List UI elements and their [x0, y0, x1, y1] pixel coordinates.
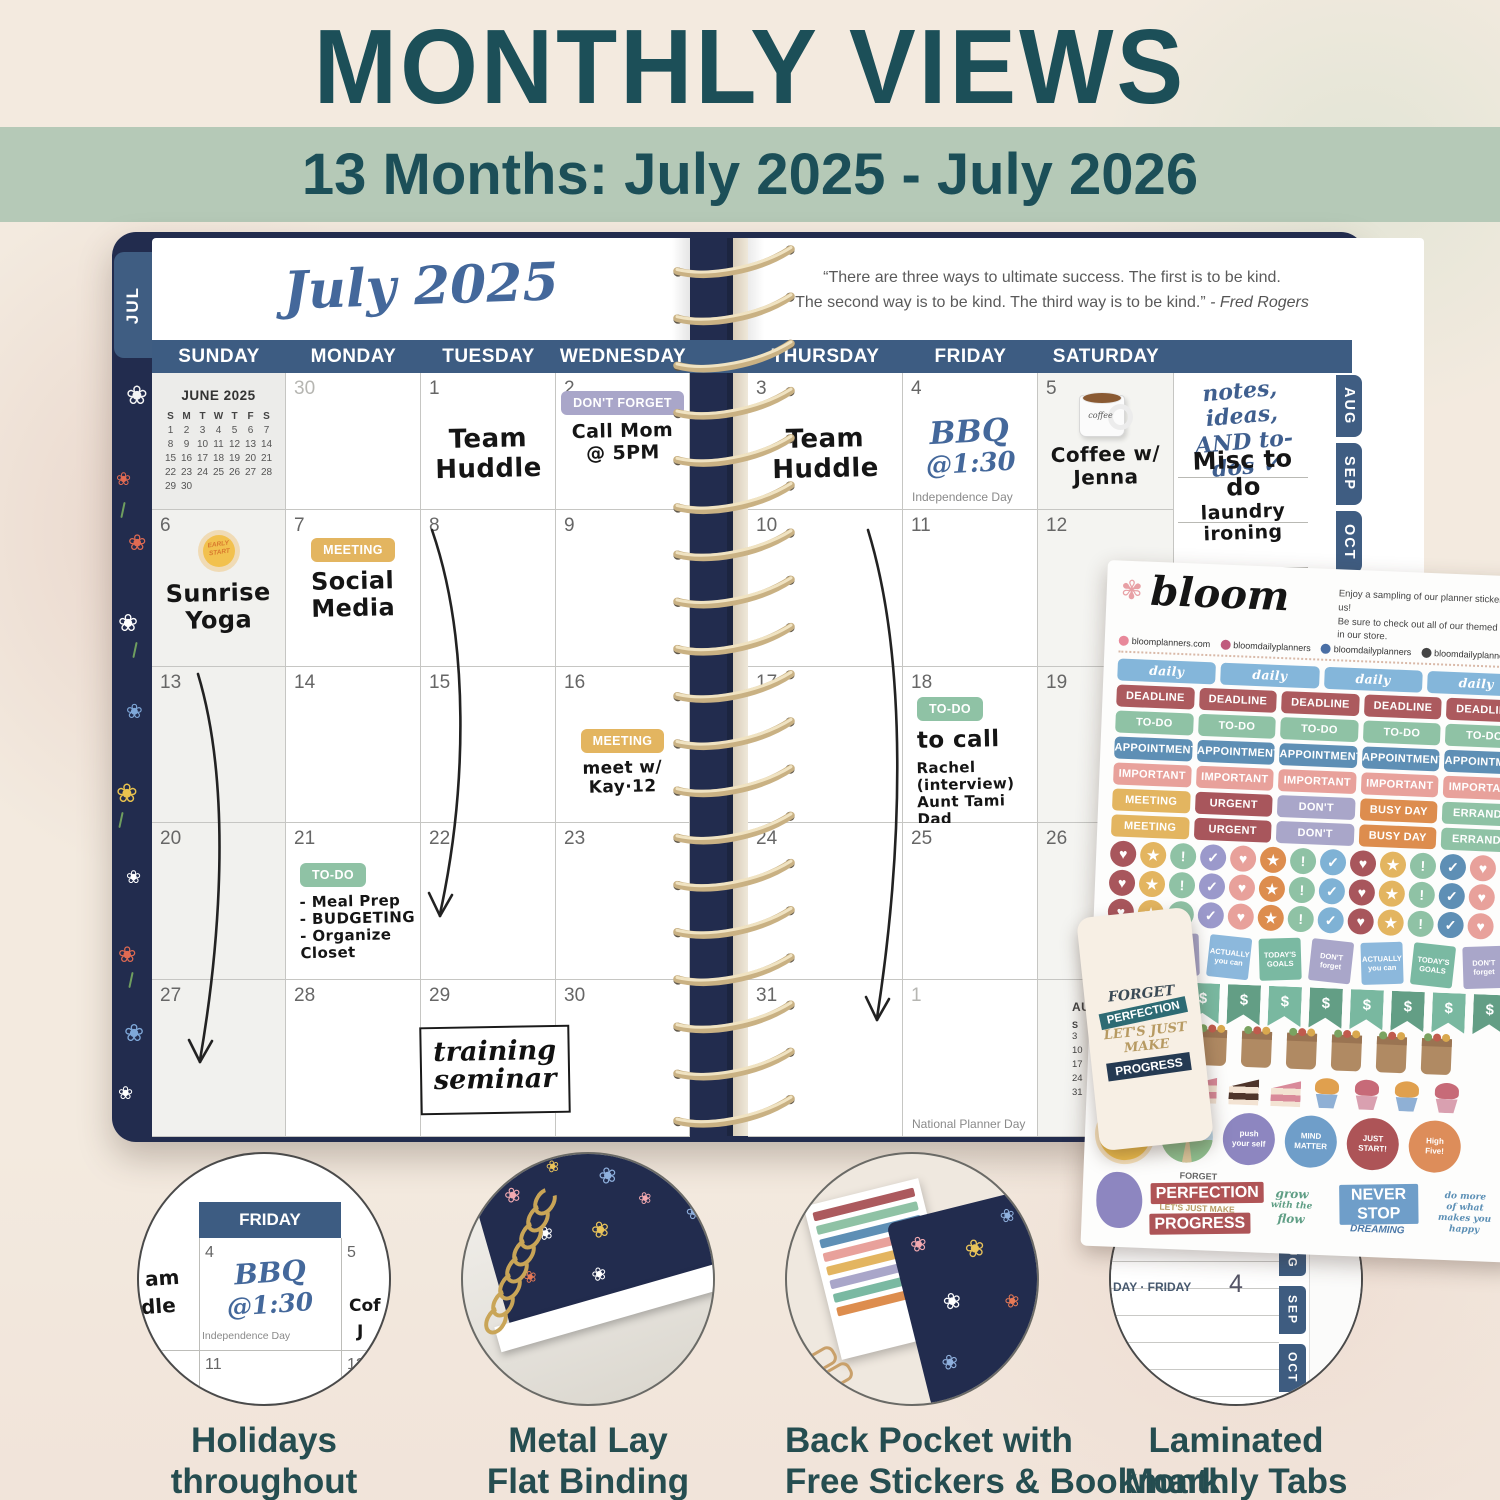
note-square-sticker: TODAY'S GOALS [1410, 942, 1456, 988]
sticker-label: ERRANDS [1442, 802, 1500, 827]
calendar-day-cell: 6EARLYSTARTSunriseYoga [152, 510, 286, 667]
sticker-dot: ♥ [1228, 874, 1255, 901]
sticker-label: APPOINTMENT [1444, 750, 1500, 775]
handwriting: SocialMedia [311, 567, 396, 623]
sticker-label: TO-DO [1280, 717, 1358, 742]
sticker-dot: ★ [1258, 875, 1285, 902]
sticker-label: TO-DO [1115, 711, 1193, 736]
day-cell-content: EARLYSTARTSunriseYoga [152, 510, 285, 635]
sticker-dot: ! [1409, 852, 1436, 879]
handwriting-line: Huddle [772, 454, 879, 486]
cupcake-sticker [1432, 1083, 1461, 1114]
calendar-day-cell: 24 [748, 823, 903, 980]
calendar-day-cell: 21TO-DO- Meal Prep- BUDGETING- Organize … [286, 823, 421, 980]
sticker-label: BUSY DAY [1360, 798, 1438, 823]
cover-flower: ❀ [596, 1163, 620, 1189]
calendar-day-cell: 30 [286, 373, 421, 510]
holiday-label: National Planner Day [912, 1117, 1025, 1131]
day-cell-content: TeamHuddle [421, 373, 555, 484]
cover-stem [128, 972, 133, 988]
quote-line2: The second way is to be kind. The third … [795, 294, 1206, 311]
sticker-label: ERRANDS [1441, 828, 1500, 853]
weekday-label: MONDAY [286, 340, 421, 373]
handwriting-line: Call Mom [571, 420, 673, 444]
day-cell-content: MEETINGmeet w/ Kay·12 [556, 667, 689, 798]
calendar-day-cell: 5coffeeCoffee w/Jenna [1038, 373, 1174, 510]
handwriting-line: meet w/ Kay·12 [556, 758, 690, 800]
quote-attribution: - Fred Rogers [1210, 294, 1309, 311]
sticker-text: HighFive! [1425, 1136, 1444, 1157]
calendar-day-cell: 23 [556, 823, 690, 980]
notes-hand-line: ironing [1174, 521, 1313, 547]
calendar-day-cell: JUNE 2025SMTWTFS123456789101112131415161… [152, 373, 286, 510]
mini-cal-week: 15161718192021 [152, 452, 285, 466]
cover-flower: ❀ [589, 1217, 613, 1243]
calendar-day-cell: 18TO-DOto callRachel (interview)Aunt Tam… [903, 667, 1038, 823]
label-sticker: TO-DO [300, 863, 366, 887]
brand-logo: bloom [1150, 572, 1290, 618]
sticker-label: APPOINTMENT [1114, 736, 1192, 761]
sticker-text-line: START! [1358, 1144, 1387, 1155]
sticker-dot: ✓ [1438, 883, 1465, 910]
quote-circle-sticker: pushyour self [1222, 1112, 1276, 1166]
day-cell-content [286, 667, 420, 703]
sticker-label: APPOINTMENT [1197, 740, 1275, 765]
quote-circle-sticker: JUSTSTART! [1346, 1117, 1400, 1171]
calendar-day-cell: 14 [286, 667, 421, 823]
day-cell-content [421, 980, 555, 1016]
sticker-dot: ♥ [1348, 879, 1375, 906]
day-cell-content: TO-DOto callRachel (interview)Aunt TamiD… [903, 667, 1037, 828]
cupcake-sticker [1392, 1081, 1421, 1112]
handwriting: - Meal Prep- BUDGETING- Organize Closet [299, 892, 420, 963]
q-line: flow [1251, 1210, 1330, 1228]
weekday-label: THURSDAY [748, 340, 903, 373]
page-title: MONTHLY VIEWS [0, 7, 1500, 129]
sticker-dot: ★ [1379, 851, 1406, 878]
sticker-label: DEADLINE [1364, 694, 1442, 719]
quote-circle-sticker: MINDMATTER [1284, 1115, 1338, 1169]
sticker-dot: ✓ [1200, 844, 1227, 871]
note-square-sticker: DON'T forget [1462, 946, 1500, 989]
mini-cal-title: JUNE 2025 [152, 388, 285, 403]
handwriting-line: @ 5PM [572, 442, 674, 466]
day-cell-content [152, 667, 285, 703]
back-pocket-detail-circle: ❀❀❀❀❀❀❀ [785, 1152, 1039, 1406]
handwriting: meet w/ Kay·12 [556, 758, 690, 800]
sticker-label: MEETING [1112, 788, 1190, 813]
sticker-label: IMPORTANT [1443, 776, 1500, 801]
sticker-text: JUSTSTART! [1358, 1134, 1388, 1155]
day-cell-content: MEETINGSocialMedia [286, 510, 420, 623]
sticker-text-line: your self [1232, 1139, 1266, 1150]
tab-aug: AUG [1336, 375, 1362, 437]
weekday-label: TUESDAY [421, 340, 556, 373]
calendar-day-cell: 25 [903, 823, 1038, 980]
sticker-dot: ♥ [1347, 908, 1374, 935]
mini-cal-dow: SMTWTFS [152, 410, 285, 424]
sticker-dot: ★ [1140, 842, 1167, 869]
feature-caption: Back Pocket withFree Stickers & Bookmark [785, 1420, 1039, 1500]
handwriting-line: Rachel (interview) [916, 758, 1037, 795]
quote-line1: “There are three ways to ultimate succes… [823, 269, 1281, 286]
cover-flower: ❀ [637, 1190, 654, 1209]
q-banner: PERFECTION [1151, 1182, 1264, 1205]
sun-sticker: EARLYSTART [196, 528, 242, 574]
cover-flower: ❀ [118, 1084, 133, 1102]
cover-flower: ❀ [118, 944, 136, 966]
label-sticker: MEETING [581, 729, 665, 753]
cupcake-sticker [1312, 1078, 1341, 1109]
sticker-dot: ! [1408, 881, 1435, 908]
social-item: bloomplanners.com [1119, 636, 1211, 650]
sticker-text-line: MATTER [1294, 1141, 1327, 1152]
day-cell-content [556, 980, 689, 1016]
cover-flower: ❀ [998, 1205, 1017, 1226]
cover-flower: ❀ [940, 1351, 961, 1374]
cover-stem [132, 642, 137, 658]
partial-quote-sticker [1095, 1171, 1143, 1229]
binding-detail-circle: ❀❀❀❀❀❀❀❀❀❀❀ [461, 1152, 715, 1406]
grocery-bag-sticker [1421, 1038, 1452, 1075]
sticker-dot: ! [1288, 877, 1315, 904]
feature-back-pocket: ❀❀❀❀❀❀❀ Back Pocket withFree Stickers & … [785, 1152, 1039, 1500]
day-cell-content [556, 510, 689, 546]
sticker-label: BUSY DAY [1358, 824, 1436, 849]
sticker-dot: ! [1170, 843, 1197, 870]
day-cell-content: coffeeCoffee w/Jenna [1038, 373, 1173, 489]
handwriting-lead: to call [917, 726, 1000, 754]
weekday-label: WEDNESDAY [556, 340, 690, 373]
label-sticker: MEETING [311, 538, 395, 562]
day-cell-content: BBQ@1:30 [903, 373, 1037, 479]
day-cell-content [421, 823, 555, 859]
note-square-sticker: TODAY'S GOALS [1259, 938, 1302, 981]
calendar-day-cell: 1National Planner Day [903, 980, 1038, 1137]
day-cell-content [748, 823, 902, 859]
mini-cal-week: 891011121314 [152, 438, 285, 452]
inspirational-quote: “There are three ways to ultimate succes… [772, 266, 1332, 316]
day-cell-content [286, 373, 420, 409]
sticker-label: APPOINTMENT [1362, 746, 1440, 771]
forget-perfection-sticker: FORGETPERFECTIONLET'S JUST MAKEPROGRESS [1149, 1169, 1245, 1236]
mug-label: coffee [1079, 411, 1123, 420]
day-cell-content [748, 980, 902, 1016]
mini-june-calendar: JUNE 2025SMTWTFS123456789101112131415161… [152, 373, 285, 509]
day-cell-content [556, 823, 689, 859]
flower-icon: ✾ [1120, 577, 1143, 604]
dollar-flag-sticker: $ [1267, 986, 1302, 1027]
day-cell-content [903, 510, 1037, 546]
product-image: MONTHLY VIEWS 13 Months: July 2025 - Jul… [0, 0, 1500, 1500]
holiday-label: Independence Day [912, 490, 1013, 504]
calendar-day-cell: 27 [152, 980, 286, 1137]
cake-slice-sticker [1270, 1080, 1301, 1107]
handwriting-line: Team [771, 424, 878, 456]
calendar-day-cell: 30 [556, 980, 690, 1137]
training-seminar-note: training seminar [419, 1025, 571, 1116]
q-banner: NEVER STOP [1339, 1183, 1418, 1224]
social-text: bloomdailyplanners [1233, 640, 1311, 653]
left-calendar-grid: JUNE 2025SMTWTFS123456789101112131415161… [152, 373, 690, 1137]
dollar-flag-sticker: $ [1390, 991, 1425, 1032]
cupcake-sticker [1352, 1079, 1381, 1110]
dollar-flag-sticker: $ [1349, 989, 1384, 1030]
sticker-label: MEETING [1111, 814, 1189, 839]
sticker-sheet-blurb: Enjoy a sampling of our planner stickers… [1337, 579, 1500, 650]
mini-cal-week: 2930 [152, 480, 285, 494]
day-cell-content: TO-DO- Meal Prep- BUDGETING- Organize Cl… [286, 823, 420, 961]
cover-flower: ❀ [126, 868, 141, 886]
handwriting-line: Social [311, 567, 395, 596]
sticker-dot: ★ [1260, 846, 1287, 873]
calendar-day-cell: 13 [152, 667, 286, 823]
instagram-icon [1220, 640, 1230, 650]
day-cell-content [421, 667, 555, 703]
sticker-label: daily gratitude [1220, 663, 1319, 689]
sticker-label: IMPORTANT [1196, 766, 1274, 791]
grocery-bag-sticker [1286, 1033, 1317, 1070]
notes-handwriting: Misc to dolaundryironing [1174, 447, 1312, 545]
calendar-day-cell: 11 [903, 510, 1038, 667]
cover-flower: ❀ [589, 1263, 608, 1284]
sticker-label: daily gratitude [1324, 667, 1423, 693]
handwriting-line: Huddle [435, 454, 542, 486]
tab-jul: JUL [114, 252, 152, 358]
subtitle-text: 13 Months: July 2025 - July 2026 [0, 127, 1500, 222]
tab-sep: SEP [1336, 443, 1362, 505]
mug-coffee [1082, 392, 1122, 404]
cover-stem [120, 502, 125, 518]
sticker-label: DEADLINE [1116, 685, 1194, 710]
cover-flower: ❀ [502, 1184, 524, 1208]
feature-caption: LaminatedMonthly Tabs [1109, 1420, 1363, 1500]
sticker-label: DEADLINE [1446, 698, 1500, 723]
handwriting-line: Yoga [166, 606, 271, 636]
social-item: bloomdailyplanners [1220, 640, 1311, 654]
day-cell-content [903, 980, 1037, 1016]
cover-flower: ❀ [963, 1235, 988, 1263]
sticker-dot: ! [1290, 848, 1317, 875]
cover-flower: ❀ [1003, 1290, 1022, 1311]
sticker-dot: ★ [1139, 871, 1166, 898]
dollar-flag-sticker: $ [1431, 992, 1466, 1033]
handwriting: TeamHuddle [771, 424, 879, 485]
sticker-label: DON'T FORGET [1276, 821, 1354, 846]
handwriting-line: - Organize Closet [300, 926, 421, 963]
feature-caption: Holidaysthroughout [137, 1420, 391, 1500]
calendar-day-cell: 4BBQ@1:30Independence Day [903, 373, 1038, 510]
feature-binding: ❀❀❀❀❀❀❀❀❀❀❀ Metal LayFlat Binding [461, 1152, 715, 1500]
script-line: BBQ [923, 413, 1015, 452]
sticker-label: TO-DO [1198, 714, 1276, 739]
sticker-dot: ✓ [1198, 873, 1225, 900]
sticker-dot: ♥ [1350, 850, 1377, 877]
grocery-bag-sticker [1376, 1036, 1407, 1073]
sticker-label: URGENT [1194, 792, 1272, 817]
coffee-mug-sticker: coffee [1079, 391, 1133, 437]
label-sticker: DON'T FORGET [561, 391, 684, 415]
sticker-text: MINDMATTER [1294, 1131, 1328, 1152]
handwriting-line: Media [311, 594, 395, 623]
day-cell-content [748, 667, 902, 703]
calendar-day-cell: 20 [152, 823, 286, 980]
q-banner: PROGRESS [1149, 1213, 1250, 1235]
sticker-dot: ✓ [1320, 849, 1347, 876]
calendar-day-cell: 8 [421, 510, 556, 667]
calendar-day-cell: 31 [748, 980, 903, 1137]
dollar-flag-sticker: $ [1472, 994, 1500, 1035]
sticker-text-line: Five! [1425, 1146, 1444, 1157]
sticker-dot: ✓ [1318, 878, 1345, 905]
cover-flower: ❀ [118, 612, 138, 636]
mini-cal-week: 22232425262728 [152, 466, 285, 480]
mini-cal-week: 1234567 [152, 424, 285, 438]
bookmark: FORGET PERFECTION LET'S JUST MAKE PROGRE… [1076, 907, 1214, 1152]
subtitle-banner: 13 Months: July 2025 - July 2026 [0, 127, 1500, 222]
calendar-day-cell: 16MEETINGmeet w/ Kay·12 [556, 667, 690, 823]
day-cell-content: DON'T FORGETCall Mom@ 5PM [556, 373, 689, 464]
sticker-dot: ★ [1257, 904, 1284, 931]
day-cell-content [421, 510, 555, 546]
handwriting: SunriseYoga [165, 579, 271, 636]
weekday-label: SATURDAY [1038, 340, 1174, 373]
cover-flower: ❀ [128, 532, 146, 554]
flower-icon [1119, 636, 1129, 646]
weekday-label: SUNDAY [152, 340, 286, 373]
cover-flower: ❀ [908, 1233, 929, 1256]
handwriting: TeamHuddle [434, 424, 542, 485]
cover-flower: ❀ [1010, 1343, 1033, 1369]
quote-circle-sticker: HighFive! [1408, 1120, 1462, 1174]
sticker-dot: ♥ [1230, 845, 1257, 872]
do-more-sticker: do moreof whatmakes youhappy [1425, 1190, 1500, 1236]
feature-caption: Metal LayFlat Binding [461, 1420, 715, 1500]
day-cell-content [152, 980, 285, 1016]
handwriting-line: Jenna [1051, 465, 1161, 490]
sticker-label: IMPORTANT [1361, 772, 1439, 797]
sticker-dot: ! [1287, 906, 1314, 933]
day-cell-content [748, 510, 902, 546]
note-square-sticker: ACTUALLY you can [1360, 942, 1403, 985]
script-handwriting: BBQ@1:30 [923, 413, 1016, 481]
sticker-dot: ♥ [1468, 884, 1495, 911]
handwriting-line: Team [434, 424, 541, 456]
sticker-label: DON'T FORGET [1277, 795, 1355, 820]
note-square-sticker: ACTUALLY you can [1206, 934, 1252, 980]
cover-flower: ❀ [640, 1152, 659, 1156]
label-sticker: TO-DO [917, 697, 983, 721]
sticker-label: DEADLINE [1281, 691, 1359, 716]
calendar-day-cell: 22 [421, 823, 556, 980]
mini-tab-oct: OCT [1279, 1344, 1306, 1392]
cover-flower: ❀ [116, 470, 131, 488]
day-cell-content [286, 980, 420, 1016]
sticker-label: DEADLINE [1199, 688, 1277, 713]
feature-holidays: am dle FRIDAY 4 5 11 12 BBQ @1:30 Indepe… [137, 1152, 391, 1500]
calendar-day-cell: 3TeamHuddle [748, 373, 903, 510]
mini-tab-sep: SEP [1279, 1286, 1306, 1334]
cover-flower: ❀ [544, 1158, 561, 1177]
sticker-dot: ✓ [1317, 907, 1344, 934]
cover-flower: ❀ [126, 702, 143, 722]
sticker-label: daily gratitude [1427, 671, 1500, 697]
cover-flower: ❀ [941, 1289, 964, 1315]
cover-flower: ❀ [681, 1154, 698, 1173]
cover-flower: ❀ [126, 382, 148, 408]
cover-stem [118, 812, 123, 828]
weekday-label: FRIDAY [903, 340, 1038, 373]
handwriting: Coffee w/Jenna [1050, 442, 1160, 490]
sticker-label: IMPORTANT [1278, 769, 1356, 794]
weekday-header-band: SUNDAYMONDAYTUESDAYWEDNESDAYTHURSDAYFRID… [152, 340, 1352, 373]
never-stop-dreaming-sticker: NEVER STOPDREAMING [1338, 1182, 1419, 1237]
cover-flower: ❀ [116, 780, 138, 806]
cover-flower: ❀ [124, 1022, 144, 1046]
sticker-dot: ♥ [1469, 855, 1496, 882]
sticker-label: TO-DO [1445, 724, 1500, 749]
day-cell-content [1038, 510, 1173, 546]
calendar-day-cell: 1TeamHuddle [421, 373, 556, 510]
calendar-day-cell: 10 [748, 510, 903, 667]
sticker-dot: ! [1168, 872, 1195, 899]
social-text: bloomdailyplanners [1333, 644, 1411, 657]
grocery-bag-sticker [1331, 1034, 1362, 1071]
chocolate-cake-sticker [1228, 1078, 1259, 1105]
day-cell-content [903, 823, 1037, 859]
social-text: bloomplanners.com [1132, 636, 1211, 649]
sticker-dot: ✓ [1197, 902, 1224, 929]
social-item: bloomdailyplanners [1321, 644, 1412, 658]
sticker-dot: ★ [1377, 909, 1404, 936]
tiktok-icon [1421, 648, 1431, 658]
sticker-dot: ✓ [1437, 912, 1464, 939]
note-square-sticker: DON'T forget [1308, 938, 1354, 984]
sticker-dot: ♥ [1467, 913, 1494, 940]
calendar-day-cell: 17 [748, 667, 903, 823]
sticker-text: pushyour self [1232, 1129, 1266, 1150]
sticker-dot: ♥ [1109, 869, 1136, 896]
sticker-label: TO-DO [1363, 720, 1441, 745]
handwriting-line: Sunrise [165, 579, 270, 609]
facebook-icon [1321, 644, 1331, 654]
sticker-dot: ★ [1378, 880, 1405, 907]
handwriting: Call Mom@ 5PM [571, 420, 673, 465]
social-text: bloomdailyplanners [1434, 648, 1500, 661]
handwriting: Rachel (interview)Aunt TamiDad [916, 758, 1037, 829]
script-line: @1:30 [925, 447, 1016, 481]
sticker-label: IMPORTANT [1113, 762, 1191, 787]
sticker-dot: ! [1407, 910, 1434, 937]
sticker-dot: ♥ [1110, 840, 1137, 867]
floral-pocket: ❀❀❀❀❀❀❀ [886, 1185, 1039, 1406]
calendar-day-cell: 9 [556, 510, 690, 667]
sticker-label: APPOINTMENT [1279, 743, 1357, 768]
calendar-day-cell: 28 [286, 980, 421, 1137]
dollar-flag-sticker: $ [1308, 988, 1343, 1029]
social-item: bloomdailyplanners [1421, 648, 1500, 662]
holidays-detail-circle: am dle FRIDAY 4 5 11 12 BBQ @1:30 Indepe… [137, 1152, 391, 1406]
handwriting-line: Coffee w/ [1050, 442, 1160, 467]
friday-header: FRIDAY [199, 1202, 341, 1238]
tab-oct: OCT [1336, 511, 1362, 573]
landscape-path [1182, 1141, 1193, 1163]
sticker-label: URGENT [1193, 818, 1271, 843]
day-cell-content [152, 823, 285, 859]
calendar-day-cell: 2DON'T FORGETCall Mom@ 5PM [556, 373, 690, 510]
quote-sticker-row: FORGETPERFECTIONLET'S JUST MAKEPROGRESSg… [1095, 1167, 1500, 1247]
sticker-dot: ✓ [1439, 854, 1466, 881]
